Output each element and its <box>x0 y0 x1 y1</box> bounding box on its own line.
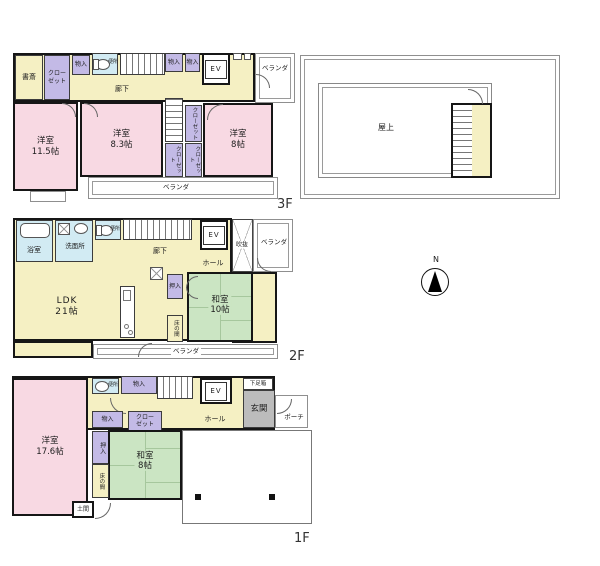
elevator-1f: EV <box>200 378 232 404</box>
bathtub-icon <box>20 223 50 238</box>
veranda-2f-bottom-label: ベランダ <box>171 348 201 356</box>
wall-fixture-3f-b <box>244 53 251 60</box>
storage-3f-c: 物入 <box>185 53 200 72</box>
study-3f: 書斎 <box>15 55 43 100</box>
hall-label-1f: ホール <box>205 415 226 423</box>
refrigerator-icon <box>150 267 163 280</box>
stove-burner-icon <box>124 324 129 329</box>
floor-label-2f: 2F <box>289 349 305 364</box>
stairs-2f <box>123 219 192 240</box>
rooftop-stairs <box>453 105 472 176</box>
storage-3f-b: 物入 <box>165 53 183 72</box>
veranda-2f-right-label: ベランダ <box>261 239 287 247</box>
elevator-2f: EV <box>200 220 228 250</box>
shoe-cabinet: 下足箱 <box>243 378 273 390</box>
western-room-17-6: 洋室 17.6帖 <box>12 378 88 516</box>
washbasin-icon <box>74 223 88 234</box>
toilet-label-3f: 便所 <box>108 59 118 65</box>
tatami-line <box>220 320 251 321</box>
floor-label-1f: 1F <box>294 531 310 546</box>
veranda-3f-bottom-label: ベランダ <box>163 184 189 192</box>
toilet-tank-icon-3f <box>93 59 99 70</box>
oshiire-2f: 押入 <box>167 274 183 299</box>
closet-3f-main: クロー ゼット <box>44 55 70 100</box>
toilet-tank-icon-2f <box>96 225 102 236</box>
compass-n-label: N <box>432 255 440 265</box>
tokonoma-2f: 床の間 <box>167 315 183 342</box>
storage-1f-b: 物入 <box>92 411 123 428</box>
elevator-cab-1f: EV <box>205 382 226 401</box>
bay-window-3f <box>30 191 66 202</box>
floor-plan-sheet: 書斎 クロー ゼット 物入 便所 物入 物入 EV 廊下 ベランダ 洋室 11.… <box>0 0 600 566</box>
toilet-label-2f: 便所 <box>110 226 120 232</box>
tatami-line <box>145 448 180 449</box>
atrium-label-2f: 吹抜 <box>235 241 249 248</box>
closet-3f-bl: クローゼット <box>165 143 183 177</box>
corridor-label-3f: 廊下 <box>115 85 129 93</box>
floor-label-3f: 3F <box>277 197 293 212</box>
hall-label-2f: ホール <box>203 259 224 267</box>
stairs-3f-mid <box>165 98 183 142</box>
tatami-line <box>145 482 180 483</box>
elevator-cab-3f: EV <box>205 60 226 79</box>
porch-label: ポーチ <box>284 414 304 422</box>
door-arc <box>95 503 111 519</box>
toilet-icon-1f <box>95 381 109 392</box>
entrance-genkan: 玄関 <box>243 390 275 428</box>
storage-3f-a: 物入 <box>72 55 90 75</box>
kitchen-sink-icon <box>123 290 131 301</box>
veranda-3f-right-label: ベランダ <box>262 65 288 73</box>
elevator-3f: EV <box>202 53 230 85</box>
stove-burner-icon <box>128 330 133 335</box>
rooftop-stairwell <box>451 103 492 178</box>
washer-icon <box>58 223 70 235</box>
closet-1f: クロー ゼット <box>128 411 162 431</box>
pillar <box>269 494 275 500</box>
doma: 土間 <box>72 501 94 518</box>
rooftop-label: 屋上 <box>378 123 394 133</box>
ldk-2f-extension <box>13 341 93 358</box>
bathroom-label: 浴室 <box>27 246 41 254</box>
wall-fixture-3f-a <box>233 53 242 60</box>
stairs-3f-top <box>120 53 165 75</box>
corridor-label-2f: 廊下 <box>153 247 167 255</box>
compass-arrow-icon <box>428 271 442 292</box>
japanese-room-10-label: 和室 10帖 <box>208 295 231 315</box>
storage-1f-a: 物入 <box>121 376 157 394</box>
ldk-label: LDK 21帖 <box>55 296 78 318</box>
japanese-room-8-label: 和室 8帖 <box>134 451 155 471</box>
closet-3f-br: クローゼット <box>185 143 202 177</box>
stairs-1f <box>157 376 193 399</box>
courtyard-1f <box>182 430 312 524</box>
closet-3f-tr: クローゼット <box>185 105 202 142</box>
pillar <box>195 494 201 500</box>
rooftop-landing <box>472 105 491 176</box>
tokonoma-1f: 床の間 <box>92 464 109 498</box>
toilet-label-1f: 便所 <box>108 382 118 388</box>
washroom-label: 洗面所 <box>65 243 85 251</box>
elevator-cab-2f: EV <box>203 226 224 245</box>
